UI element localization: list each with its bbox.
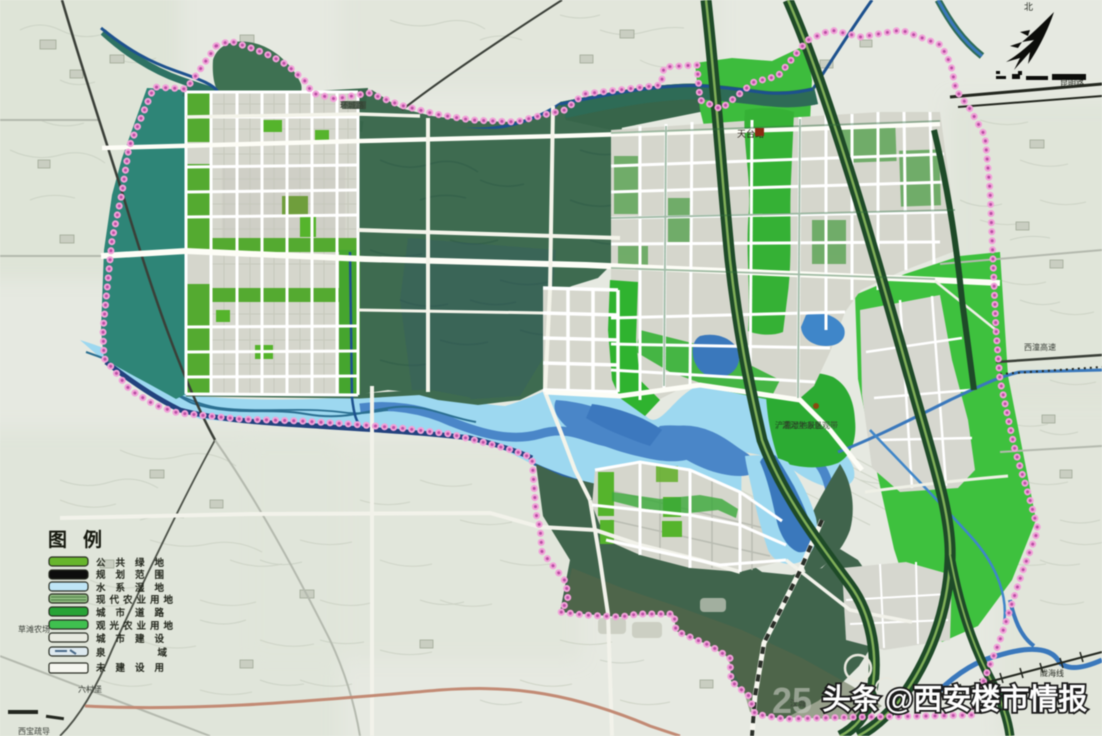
svg-text:公共绿地: 公共绿地 <box>96 557 174 569</box>
svg-text:现代农业用地: 现代农业用地 <box>96 594 177 606</box>
svg-text:昆明路: 昆明路 <box>1060 78 1084 88</box>
svg-text:图例: 图例 <box>48 528 118 551</box>
svg-text:规划范围: 规划范围 <box>96 569 174 581</box>
svg-text:头条: 头条 <box>822 683 880 716</box>
svg-text:观光农业用地: 观光农业用地 <box>95 620 177 632</box>
svg-text:渭河生态景观带: 渭河生态景观带 <box>782 420 838 430</box>
svg-text:城市道路: 城市道路 <box>96 607 174 619</box>
svg-text:草滩农场: 草滩农场 <box>18 624 50 634</box>
svg-text:北: 北 <box>1024 2 1033 12</box>
svg-text:六村堡: 六村堡 <box>78 684 102 694</box>
svg-text:@西安楼市情报: @西安楼市情报 <box>885 682 1087 716</box>
svg-text:城市建设: 城市建设 <box>96 633 174 645</box>
svg-text:西宝疏导: 西宝疏导 <box>18 726 50 736</box>
svg-text:陇海线: 陇海线 <box>1040 668 1064 678</box>
svg-text:水系湿地: 水系湿地 <box>96 582 174 594</box>
svg-text:25: 25 <box>772 680 812 721</box>
svg-text:未建设用: 未建设用 <box>95 662 174 674</box>
svg-text:泉域: 泉域 <box>95 647 219 659</box>
svg-text:西潼高速: 西潼高速 <box>1024 342 1056 352</box>
